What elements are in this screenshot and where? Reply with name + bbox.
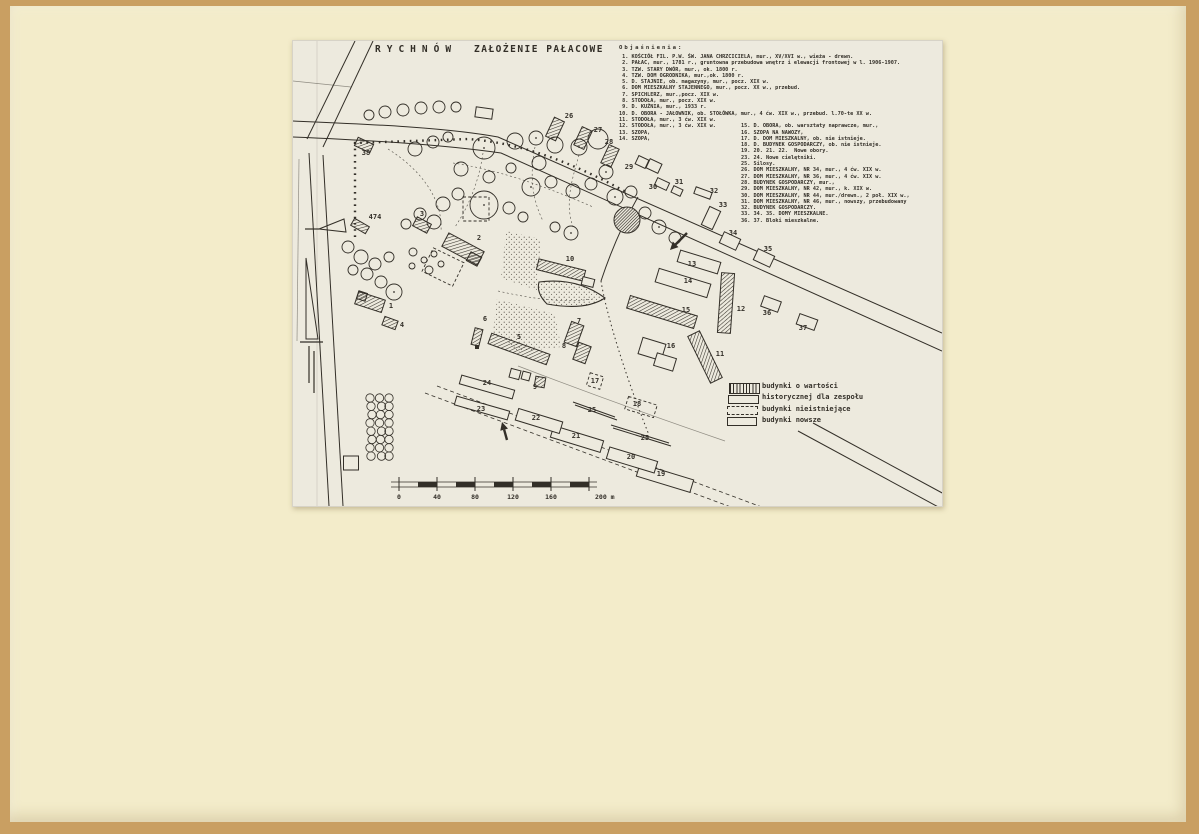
- building-label: 31: [675, 178, 683, 186]
- direction-arrow: [676, 233, 687, 244]
- building-g2: [463, 197, 489, 221]
- building-label: 34: [729, 229, 737, 237]
- orchard-tree: [367, 402, 375, 410]
- tree: [483, 171, 495, 183]
- orchard-tree: [376, 410, 384, 418]
- building-x2: [344, 456, 359, 470]
- tree-dot: [658, 226, 660, 228]
- building-label: 38: [362, 149, 370, 157]
- direction-arrow: [504, 430, 507, 440]
- scanned-page: RYCHNÓW ZAŁOŻENIE PAŁACOWE Objaśnienia: …: [0, 0, 1199, 834]
- building-label: 17: [591, 377, 599, 385]
- building-4: [382, 316, 398, 329]
- building-label: 6: [483, 315, 487, 323]
- tree-dot: [570, 232, 572, 234]
- tree: [427, 136, 439, 148]
- road: [437, 386, 775, 506]
- building-31: [671, 186, 683, 197]
- scale-segment: [418, 482, 437, 487]
- building-label: 11: [716, 350, 724, 358]
- scale-label: 40: [433, 493, 441, 501]
- building-label: 19: [657, 470, 665, 478]
- building-28: [601, 145, 619, 168]
- tree: [384, 252, 394, 262]
- scale-segment: [456, 482, 475, 487]
- scale-label: 80: [471, 493, 479, 501]
- key-swatch-nonexistent: [727, 406, 758, 415]
- tree: [364, 110, 374, 120]
- building-label: 4: [400, 321, 404, 329]
- building-label: 35: [764, 245, 772, 253]
- building-label: 23: [477, 405, 485, 413]
- tree-dot: [605, 171, 607, 173]
- building-label: 32: [710, 187, 718, 195]
- tree: [454, 162, 468, 176]
- tree: [401, 219, 411, 229]
- orchard-tree: [375, 444, 383, 452]
- building-label: 25: [641, 434, 649, 442]
- album-page: RYCHNÓW ZAŁOŻENIE PAŁACOWE Objaśnienia: …: [10, 6, 1186, 822]
- key-label-newer: budynki nowsze: [762, 416, 821, 424]
- building-x1: [475, 107, 493, 119]
- tree: [452, 188, 464, 200]
- road: [297, 159, 299, 341]
- scale-segment: [570, 482, 589, 487]
- tree: [342, 241, 354, 253]
- orchard-tree: [385, 410, 393, 418]
- orchard-tree: [366, 419, 374, 427]
- building-label: 36: [763, 309, 771, 317]
- building-label: 14: [684, 277, 692, 285]
- tree: [532, 156, 546, 170]
- tree: [421, 257, 427, 263]
- tree: [550, 222, 560, 232]
- tree: [436, 197, 450, 211]
- tree-dot: [530, 186, 532, 188]
- building-label: 37: [799, 324, 807, 332]
- tree: [566, 184, 580, 198]
- orchard-tree: [366, 394, 374, 402]
- road: [323, 41, 373, 147]
- key-label-historic-2: historycznej dla zespołu: [762, 393, 863, 401]
- pond: [538, 281, 605, 306]
- building-12: [717, 273, 734, 334]
- building-label: 10: [566, 255, 574, 263]
- building-6: [471, 328, 483, 346]
- key-swatch-historic-base: [728, 395, 759, 404]
- tree: [361, 268, 373, 280]
- orchard-tree: [375, 394, 383, 402]
- key-label-nonexistent: budynki nieistniejące: [762, 405, 851, 413]
- tree: [409, 263, 415, 269]
- building-label: 1: [389, 302, 393, 310]
- road: [813, 423, 942, 501]
- key-label-historic-1: budynki o wartości: [762, 382, 838, 390]
- building-label: 29: [625, 163, 633, 171]
- tree: [438, 261, 444, 267]
- building-label: 27: [594, 126, 602, 134]
- scale-unit: 200 m: [595, 493, 615, 501]
- tree: [397, 104, 409, 116]
- road: [293, 81, 351, 87]
- tree: [415, 102, 427, 114]
- pond: [501, 231, 541, 290]
- orchard-tree: [385, 394, 393, 402]
- tree: [518, 212, 528, 222]
- building-label: 24: [483, 379, 491, 387]
- building-label: 9: [533, 383, 537, 391]
- building-label: 15: [682, 306, 690, 314]
- key-swatch-historic: [729, 383, 760, 394]
- building-13: [677, 250, 721, 274]
- building-33: [701, 206, 720, 229]
- building-label: 13: [688, 260, 696, 268]
- tree: [451, 102, 461, 112]
- building-label: 22: [532, 414, 540, 422]
- scale-segment: [494, 482, 513, 487]
- building-label: 21: [572, 432, 580, 440]
- orchard-tree: [367, 452, 375, 460]
- building-16b: [654, 353, 677, 371]
- building-label: 25: [588, 406, 596, 414]
- orchard-tree: [385, 444, 393, 452]
- building-label: 3: [420, 210, 424, 218]
- building-label: 26: [565, 112, 573, 120]
- site-plan-drawing: 3847432141056789242322212019252517181615…: [293, 41, 942, 506]
- scale-label: 0: [397, 493, 401, 501]
- map-key: budynki o wartości historycznej dla zesp…: [727, 382, 937, 432]
- orchard-tree: [367, 427, 375, 435]
- building-27: [574, 127, 592, 150]
- tree: [409, 248, 417, 256]
- road: [388, 149, 441, 231]
- pond-dark: [614, 207, 640, 233]
- marker-square: [475, 345, 479, 349]
- building-label: 474: [369, 213, 382, 221]
- tree-dot: [483, 204, 485, 206]
- building-label: 33: [719, 201, 727, 209]
- building-label: 16: [667, 342, 675, 350]
- orchard-tree: [375, 419, 383, 427]
- key-swatch-newer: [727, 417, 757, 426]
- orchard-tree: [368, 435, 376, 443]
- building-26: [546, 117, 565, 141]
- tree: [503, 202, 515, 214]
- scale-label: 160: [545, 493, 557, 501]
- scale-label: 120: [507, 493, 519, 501]
- orchard-tree: [385, 419, 393, 427]
- building-label: 8: [562, 342, 566, 350]
- building-label: 28: [605, 138, 613, 146]
- tree-dot: [535, 137, 537, 139]
- tree-dot: [393, 291, 395, 293]
- tree-dot: [614, 196, 616, 198]
- north-arrow-symbol: [306, 258, 318, 339]
- building-3: [413, 217, 432, 233]
- tree-dot: [483, 147, 485, 149]
- building-label: 18: [633, 400, 641, 408]
- tree: [433, 101, 445, 113]
- building-label: 30: [649, 183, 657, 191]
- orchard-tree: [385, 435, 393, 443]
- road: [307, 41, 355, 139]
- building-label: 20: [627, 453, 635, 461]
- tree: [369, 258, 381, 270]
- building-label: 5: [517, 333, 521, 341]
- tree: [354, 250, 368, 264]
- orchard-tree: [368, 410, 376, 418]
- building-label: 2: [477, 234, 481, 242]
- orchard-tree: [366, 444, 374, 452]
- scale-segment: [532, 482, 551, 487]
- site-plan-sheet: RYCHNÓW ZAŁOŻENIE PAŁACOWE Objaśnienia: …: [292, 40, 943, 507]
- building-label: 12: [737, 305, 745, 313]
- tree: [545, 176, 557, 188]
- tree: [506, 163, 516, 173]
- building-474: [351, 218, 370, 233]
- building-10: [536, 259, 585, 281]
- building-x4: [521, 371, 531, 381]
- building-x3: [509, 368, 521, 379]
- tree: [348, 265, 358, 275]
- road: [798, 431, 942, 506]
- orchard-tree: [376, 435, 384, 443]
- tree: [585, 178, 597, 190]
- building-label: 7: [577, 317, 581, 325]
- tree: [375, 276, 387, 288]
- tree: [379, 106, 391, 118]
- north-arrow-symbol: [319, 219, 346, 232]
